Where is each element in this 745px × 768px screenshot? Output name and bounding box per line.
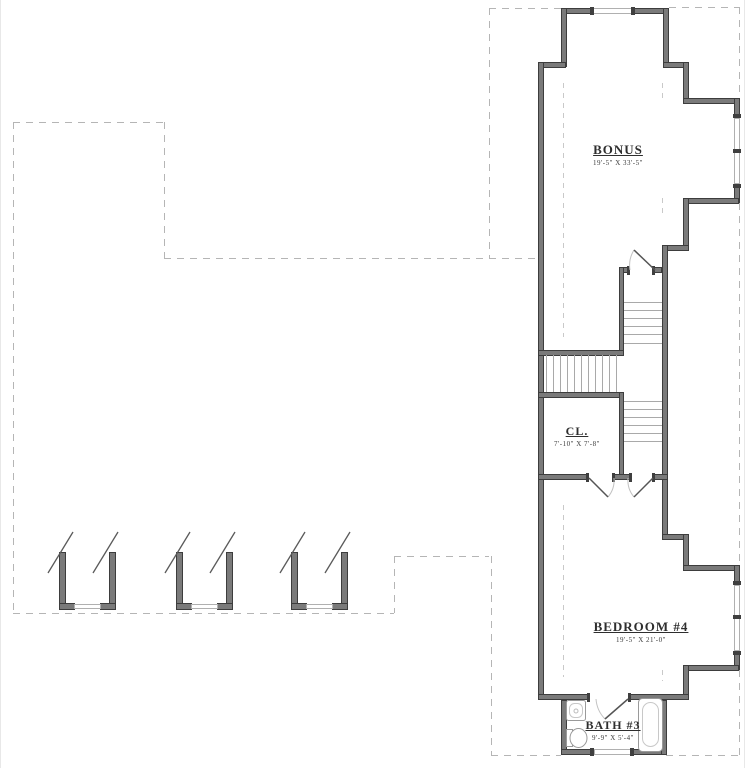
room-label-closet: CL. (517, 424, 637, 439)
dormer-roof-line (280, 532, 305, 573)
door-leaf-hall-bedroom (634, 478, 653, 497)
door-arc-bonus-stairs (630, 250, 634, 270)
room-label-block-bath3: BATH #3 9'-9" X 5'-4" (543, 718, 683, 742)
door-leaf-closet (589, 478, 608, 497)
dormer-roof-line (48, 532, 73, 573)
room-label-block-closet: CL. 7'-10" X 7'-8" (517, 424, 637, 448)
room-dimensions-bedroom4: 19'-5" X 21'-0" (571, 636, 711, 644)
door-arc-closet (608, 478, 614, 497)
dormer-roof-line (325, 532, 350, 573)
door-arc-bath (596, 699, 605, 719)
dormer-roof-line (93, 532, 118, 573)
room-label-bonus: BONUS (548, 142, 688, 158)
room-label-block-bonus: BONUS 19'-5" X 33'-5" (548, 142, 688, 167)
room-label-block-bedroom4: BEDROOM #4 19'-5" X 21'-0" (571, 619, 711, 644)
room-dimensions-bonus: 19'-5" X 33'-5" (548, 159, 688, 167)
floor-plan: BONUS 19'-5" X 33'-5" CL. 7'-10" X 7'-8"… (0, 0, 745, 768)
room-label-bedroom4: BEDROOM #4 (571, 619, 711, 635)
door-leaf-bonus-stairs (634, 250, 655, 270)
room-dimensions-bath3: 9'-9" X 5'-4" (543, 734, 683, 742)
door-leaf-bath (605, 699, 628, 719)
room-label-bath3: BATH #3 (543, 718, 683, 733)
plan-linework (1, 0, 745, 768)
dormer-roof-line (210, 532, 235, 573)
room-dimensions-closet: 7'-10" X 7'-8" (517, 440, 637, 448)
dormer-roof-line (165, 532, 190, 573)
door-arc-hall-bedroom (628, 478, 634, 497)
dormer-roof-lines (48, 532, 350, 573)
